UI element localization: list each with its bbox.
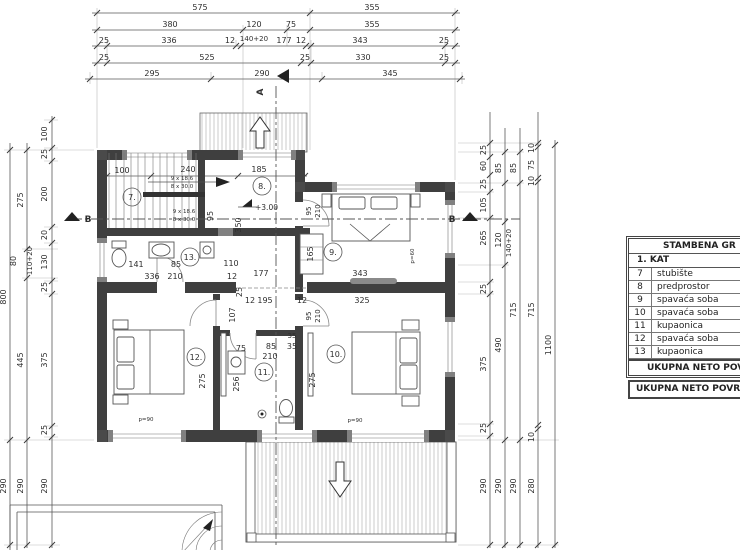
- level-marker-icon: [242, 199, 252, 207]
- dim-label: 75: [236, 344, 246, 353]
- dim-label: 336: [144, 272, 159, 281]
- room-no: 13: [629, 346, 652, 358]
- dim-label: 80: [9, 256, 18, 266]
- room-number: 9.: [329, 248, 337, 257]
- dim-label: 100: [114, 166, 129, 175]
- dim-label: 25: [40, 149, 49, 159]
- dim-label: 25: [40, 425, 49, 435]
- dim-label: 75: [286, 20, 296, 29]
- dim-label: 85: [171, 260, 181, 269]
- canopy: [200, 113, 307, 152]
- dim-label: 95: [305, 207, 313, 216]
- dim-label: 105: [479, 197, 488, 212]
- dim-label: 25: [439, 36, 449, 45]
- dim-label: 177: [253, 269, 268, 278]
- room-no: 9: [629, 294, 652, 306]
- dim-label: 25: [479, 145, 488, 155]
- dim-label: 210: [167, 272, 182, 281]
- parapet-label: p=90: [138, 417, 154, 423]
- dim-label: 85: [509, 163, 518, 173]
- dim-label: 110: [223, 259, 238, 268]
- dim-label: 25: [235, 287, 244, 297]
- dim-label: 525: [199, 53, 214, 62]
- floor-label: 1. KAT: [629, 254, 740, 268]
- room-number: 7.: [128, 193, 136, 202]
- dim-labels-left: 800 290 275 80 110+20 445 290 100 25 200…: [0, 126, 49, 493]
- dim-label: 275: [16, 192, 25, 207]
- dim-label: 210: [314, 309, 322, 322]
- stair-handrail: [143, 192, 205, 197]
- dim-label: 355: [364, 3, 379, 12]
- dim-label: 85: [494, 163, 503, 173]
- room-number: 8.: [258, 182, 266, 191]
- dim-label: 290: [40, 478, 49, 493]
- dim-labels-top: 575 355 380 120 75 355 25 336 12 140+20 …: [99, 3, 449, 78]
- nightstand: [402, 396, 419, 406]
- room-no: 8: [629, 281, 652, 293]
- dim-label: 25: [40, 282, 49, 292]
- dim-label: 100: [40, 126, 49, 141]
- terrace: [246, 442, 456, 542]
- dim-label: 177: [276, 36, 291, 45]
- dim-label: 85: [266, 342, 276, 351]
- dim-label: 25: [99, 53, 109, 62]
- dim-label: 12: [227, 272, 237, 281]
- room-name: kupaonica: [652, 320, 703, 332]
- table-row: 10 spavaća soba: [629, 307, 740, 320]
- dim-label: 25: [439, 53, 449, 62]
- dim-label: 265: [479, 230, 488, 245]
- dim-label: 290: [0, 478, 8, 493]
- dim-label: 290: [479, 478, 488, 493]
- dim-label: 185: [251, 165, 266, 174]
- table-row: 12 spavaća soba: [629, 333, 740, 346]
- nightstand: [113, 320, 128, 329]
- section-label: A: [256, 88, 266, 95]
- room-name: spavaća soba: [652, 333, 719, 345]
- dim-label: 25: [99, 36, 109, 45]
- table-footer: UKUPNA NETO POV: [629, 359, 740, 375]
- room-no: 7: [629, 268, 652, 280]
- dim-label: 195: [257, 296, 272, 305]
- parapet-label: p=60: [410, 248, 416, 264]
- door-leaf: [221, 333, 226, 396]
- table-row: 13 kupaonica: [629, 346, 740, 359]
- dim-label: 800: [0, 289, 8, 304]
- dim-label: 10: [527, 143, 536, 153]
- nightstand: [411, 194, 420, 207]
- dim-label: 60: [479, 161, 488, 171]
- dim-label: 375: [479, 356, 488, 371]
- dim-label: 290: [494, 478, 503, 493]
- dim-label: 140+20: [240, 35, 268, 43]
- table-row: 8 predprostor: [629, 281, 740, 294]
- lower-structure: [10, 505, 222, 550]
- dim-label: 1100: [544, 335, 553, 355]
- dim-label: 345: [382, 69, 397, 78]
- dim-label: 200: [40, 186, 49, 201]
- dim-label: 343: [352, 36, 367, 45]
- total-area-box: UKUPNA NETO POVRŠ: [628, 380, 740, 399]
- table-row: 7 stubište: [629, 268, 740, 281]
- stair-note: 8 x 30.0: [173, 217, 196, 223]
- stair-note: 9 x 18.6: [171, 176, 194, 182]
- room-number: 11.: [258, 368, 271, 377]
- dim-label: 95: [305, 312, 313, 321]
- section-label: B: [85, 215, 92, 225]
- dim-label: 380: [162, 20, 177, 29]
- dim-label: 275: [308, 372, 317, 387]
- room-number: 10.: [330, 350, 343, 359]
- floorplan-sheet: 575 355 380 120 75 355 25 336 12 140+20 …: [0, 0, 740, 550]
- nightstand: [402, 320, 419, 330]
- dim-label: 210: [262, 352, 277, 361]
- dim-label: 575: [192, 3, 207, 12]
- table-row: 9 spavaća soba: [629, 294, 740, 307]
- section-b-marker: [64, 212, 80, 221]
- dim-label: 336: [161, 36, 176, 45]
- dim-label: 343: [352, 269, 367, 278]
- room-no: 12: [629, 333, 652, 345]
- room-name: predprostor: [652, 281, 710, 293]
- nightstand: [113, 395, 128, 404]
- stair-note: 9 x 18.6: [173, 209, 196, 215]
- level-label: +3.00: [255, 203, 278, 212]
- dim-label: 10: [527, 432, 536, 442]
- section-label: B: [449, 215, 456, 225]
- dim-label: 490: [494, 337, 503, 352]
- dim-label: 120: [246, 20, 261, 29]
- toilet: [279, 417, 294, 423]
- dim-label: 120: [494, 232, 503, 247]
- dim-label: 715: [527, 302, 536, 317]
- dim-label: 95: [206, 211, 215, 221]
- table-row: 11 kupaonica: [629, 320, 740, 333]
- dim-label: 140+20: [505, 229, 513, 257]
- dim-label: 280: [527, 478, 536, 493]
- rug: [350, 278, 397, 284]
- dim-label: 256: [232, 376, 241, 391]
- section-a-marker: [277, 69, 289, 83]
- dim-label: 355: [364, 20, 379, 29]
- dim-label: 12: [225, 36, 235, 45]
- toilet: [112, 241, 126, 248]
- dim-label: 330: [355, 53, 370, 62]
- dim-label: 12: [245, 296, 255, 305]
- room-schedule-table: STAMBENA GR 1. KAT 7 stubište 8 predpros…: [628, 238, 740, 376]
- stair-direction-arrow-icon: [216, 177, 230, 187]
- room-name: stubište: [652, 268, 693, 280]
- dim-label: 20: [40, 230, 49, 240]
- dim-label: 445: [16, 352, 25, 367]
- dim-label: 10: [527, 176, 536, 186]
- dim-label: 25: [479, 423, 488, 433]
- dim-label: 130: [40, 254, 49, 269]
- room-number: 12.: [190, 353, 203, 362]
- room-name: spavaća soba: [652, 307, 719, 319]
- parapet-label: p=90: [347, 418, 363, 424]
- stair-note: 8 x 30.0: [171, 184, 194, 190]
- dim-label: 375: [40, 352, 49, 367]
- dim-label: 25: [479, 284, 488, 294]
- section-b-marker: [462, 212, 478, 221]
- dim-label: 275: [198, 373, 207, 388]
- dim-label: 290: [254, 69, 269, 78]
- room-name: spavaća soba: [652, 294, 719, 306]
- dim-label: 325: [354, 296, 369, 305]
- dim-label: 25: [479, 179, 488, 189]
- dim-label: 295: [144, 69, 159, 78]
- dim-label: 107: [228, 307, 237, 322]
- dim-label: 210: [314, 204, 322, 217]
- table-header: STAMBENA GR: [629, 239, 740, 254]
- dim-label: 110+20: [26, 247, 34, 275]
- dim-label: 290: [16, 478, 25, 493]
- room-number: 13.: [184, 253, 197, 262]
- dim-label: 141: [128, 260, 143, 269]
- dim-label: 240: [180, 165, 195, 174]
- dim-label: 25: [300, 53, 310, 62]
- room-no: 10: [629, 307, 652, 319]
- dim-label: 35: [287, 342, 297, 351]
- dim-label: 12: [296, 36, 306, 45]
- dim-label: 290: [509, 478, 518, 493]
- nightstand: [322, 194, 331, 207]
- dim-label: 35: [288, 332, 297, 340]
- dim-label: 715: [509, 302, 518, 317]
- dim-label: 165: [306, 246, 315, 261]
- dim-label: 350: [234, 217, 243, 232]
- room-no: 11: [629, 320, 652, 332]
- dim-label: 75: [527, 160, 536, 170]
- room-name: kupaonica: [652, 346, 703, 358]
- dim-label: 12: [297, 296, 307, 305]
